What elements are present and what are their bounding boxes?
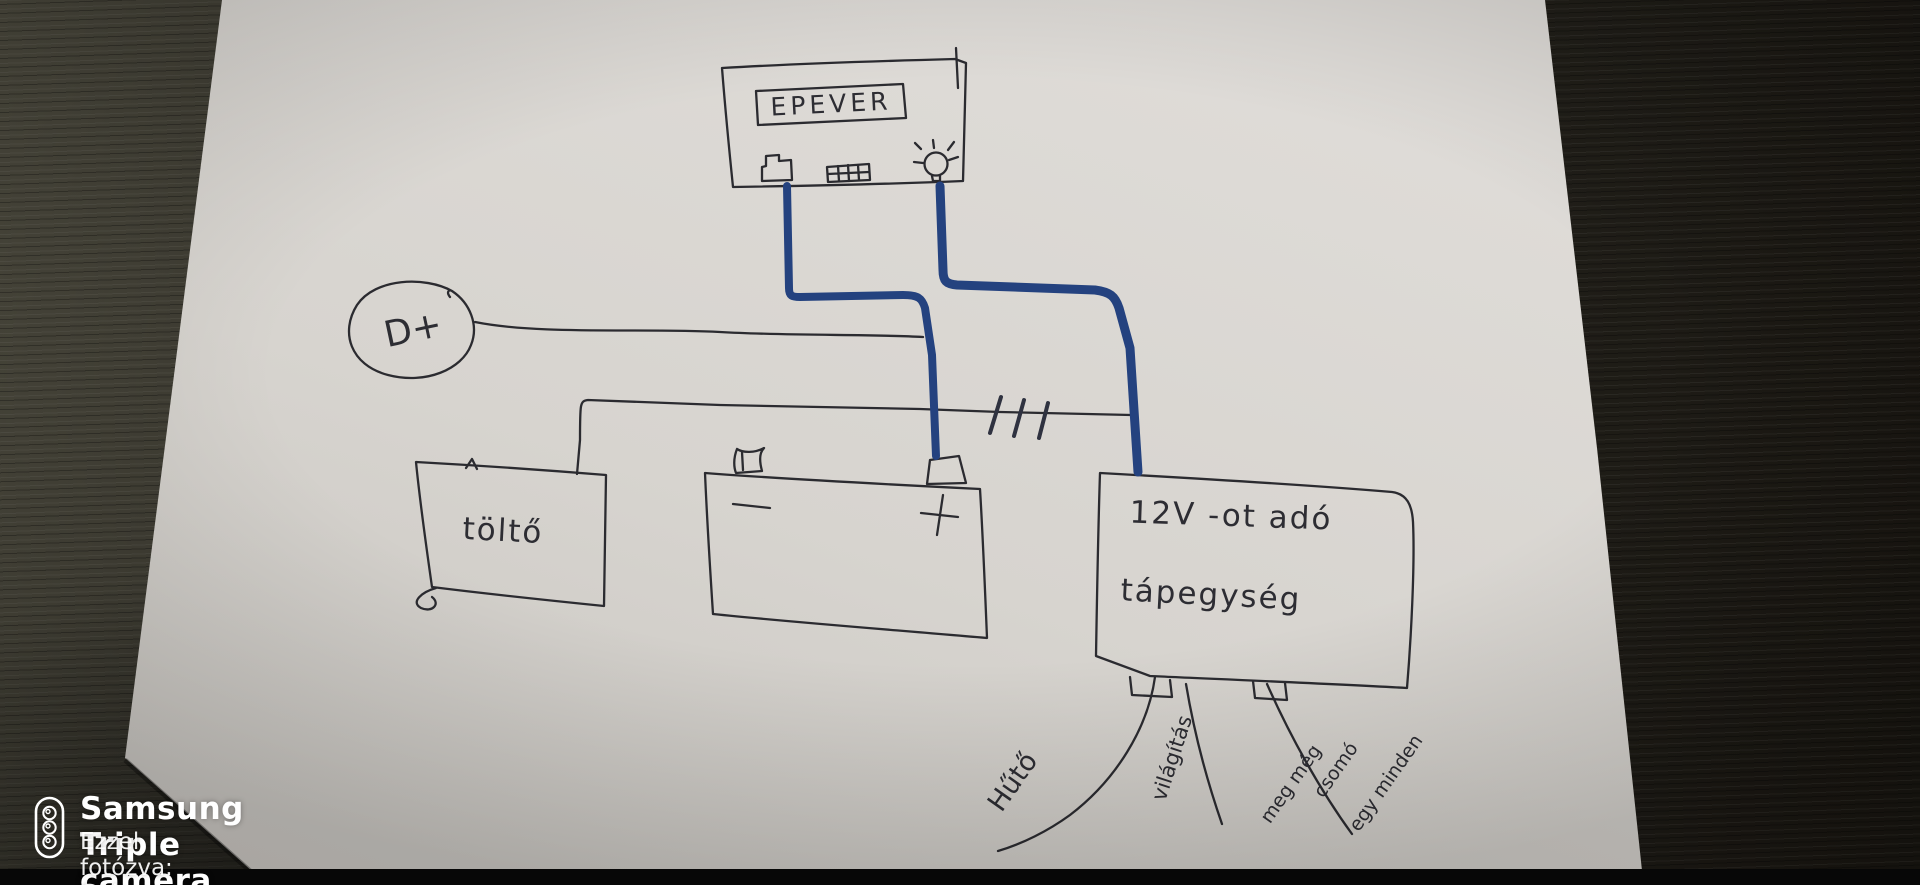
photo-background: EPEVER D+ töltő − + 12V -ot adó tápegysé… <box>0 0 1920 885</box>
camera-icon <box>0 0 100 885</box>
charger-label: töltő <box>462 511 545 551</box>
watermark-subtitle: Ezzel fotózva: Galaxy A50 <box>80 829 173 885</box>
diagram-drawing <box>0 0 1920 885</box>
power-supply-label-line1: 12V -ot adó <box>1129 494 1333 537</box>
photo-letterbox-bar <box>0 869 1920 885</box>
